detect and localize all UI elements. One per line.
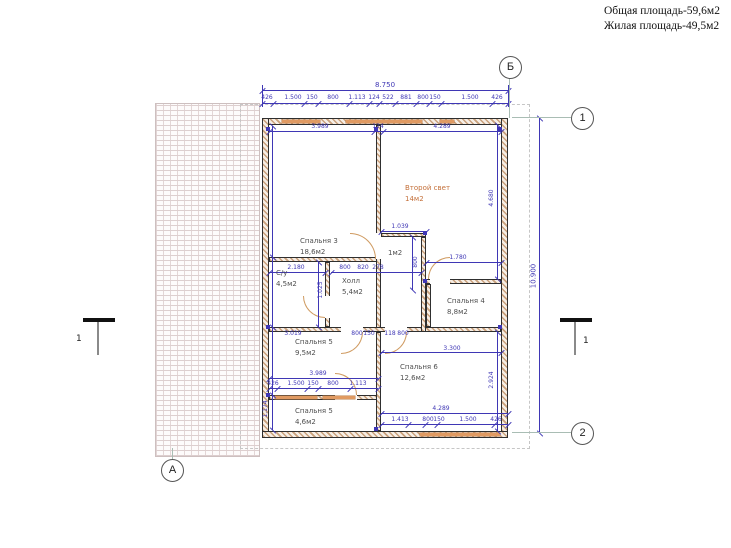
total-area-text: Общая площадь-59,6м2 <box>604 4 720 19</box>
dim-label: 1.039 <box>391 224 408 230</box>
dim-label: 881 <box>400 95 411 101</box>
dim-label: 1.113 <box>349 381 366 387</box>
grid-node <box>266 127 270 131</box>
dim-label: 150 <box>306 95 317 101</box>
dim-label: 3.989 <box>309 371 326 377</box>
room-area: 5,4м2 <box>342 287 363 298</box>
floor-plan-sheet: Общая площадь-59,6м2 Жилая площадь-49,5м… <box>0 0 731 548</box>
dim-line-right-upper <box>497 125 498 279</box>
room-name: Второй свет <box>405 183 450 194</box>
dim-label: 278 <box>372 265 383 271</box>
dim-label: 426 <box>490 417 501 423</box>
dim-label: 800 <box>413 256 419 267</box>
axis-marker-B: Б <box>499 56 522 79</box>
dim-label: 800 <box>339 265 350 271</box>
dim-label: 150 <box>433 417 444 423</box>
axis-leader <box>172 448 173 459</box>
dim-line-overall-height <box>539 118 540 433</box>
dim-label: 1.174 <box>263 400 269 417</box>
grid-node <box>374 427 378 431</box>
dim-label: 820 <box>357 265 368 271</box>
room-area: 1м2 <box>388 248 402 259</box>
title-block: Общая площадь-59,6м2 Жилая площадь-49,5м… <box>604 4 720 34</box>
room-area: 4,5м2 <box>276 279 297 290</box>
room-area: 18,6м2 <box>300 247 338 258</box>
dim-label: 3.300 <box>443 346 460 352</box>
dim-label: 118 <box>384 331 395 337</box>
dim-label: 2.924 <box>489 371 495 388</box>
room-label-bedroom6: Спальня 6 12,6м2 <box>400 362 438 383</box>
dim-label: 1.413 <box>391 417 408 423</box>
dim-line-overall-width <box>262 90 508 91</box>
section-label-right: 1 <box>583 336 589 346</box>
window <box>275 396 317 399</box>
window <box>346 120 422 123</box>
section-mark-right <box>560 318 592 322</box>
dim-line-top-inner <box>269 131 501 132</box>
dim-label: 800 <box>422 417 433 423</box>
grid-node <box>423 231 427 235</box>
room-label-closet: 1м2 <box>388 248 402 259</box>
dim-line-veranda-width <box>269 378 378 379</box>
dim-line-top-segments <box>262 103 508 104</box>
room-name: Спальня 4 <box>447 296 485 307</box>
room-label-bedroom4: Спальня 4 8,8м2 <box>447 296 485 317</box>
room-label-hall: Холл 5,4м2 <box>342 276 363 297</box>
room-name: Спальня 5 <box>295 337 333 348</box>
dim-label: 522 <box>382 95 393 101</box>
dim-label: 800 <box>351 331 362 337</box>
dim-line-closet <box>381 231 426 232</box>
grid-node <box>266 325 270 329</box>
axis-marker-A: А <box>161 459 184 482</box>
axis-leader <box>512 432 571 433</box>
dim-label: 1.500 <box>287 381 304 387</box>
dim-label: 1.780 <box>449 255 466 261</box>
axis-marker-1: 1 <box>571 107 594 130</box>
grid-node <box>423 279 427 283</box>
wall-bedroom4-west <box>426 284 431 327</box>
grid-node <box>498 325 502 329</box>
dim-label: 3.989 <box>311 124 328 130</box>
room-label-second-light: Второй свет 14м2 <box>405 183 450 204</box>
section-stem-right <box>574 322 576 355</box>
room-name: Холл <box>342 276 363 287</box>
room-area: 4,6м2 <box>295 417 333 428</box>
dim-label: 8.750 <box>375 82 395 89</box>
wall-exterior-right <box>501 118 508 438</box>
room-label-bedroom3: Спальня 3 18,6м2 <box>300 236 338 257</box>
section-label-left: 1 <box>76 334 82 344</box>
axis-marker-2: 2 <box>571 422 594 445</box>
room-name: Спальня 6 <box>400 362 438 373</box>
dim-label: 10.900 <box>531 264 538 289</box>
section-stem-left <box>97 322 99 355</box>
dim-label: 800 <box>327 381 338 387</box>
dim-label: 426 <box>267 381 278 387</box>
grid-node <box>374 127 378 131</box>
living-area-text: Жилая площадь-49,5м2 <box>604 19 720 34</box>
dim-label: 1.113 <box>348 95 365 101</box>
door-opening <box>376 233 381 259</box>
dim-label: 4.289 <box>433 124 450 130</box>
dim-label: 150 <box>429 95 440 101</box>
dim-label: 4.289 <box>432 406 449 412</box>
dim-label: 4.680 <box>489 189 495 206</box>
dim-label: 1.500 <box>459 417 476 423</box>
dim-line-bedroom6-top <box>381 352 501 353</box>
dim-label: 150 <box>363 331 374 337</box>
dim-line-veranda-segments <box>269 388 378 389</box>
window <box>420 433 500 436</box>
room-name: С/у <box>276 268 297 279</box>
axis-leader <box>509 78 510 118</box>
room-label-bathroom: С/у 4,5м2 <box>276 268 297 289</box>
dim-label: 800 <box>327 95 338 101</box>
door-opening <box>430 279 450 284</box>
dim-line-upper-right <box>426 262 501 263</box>
grid-node <box>498 127 502 131</box>
room-label-bedroom5b: Спальня 5 4,6м2 <box>295 406 333 427</box>
room-area: 9,5м2 <box>295 348 333 359</box>
section-mark-left <box>83 318 115 322</box>
dim-label: 1.025 <box>318 281 324 298</box>
dim-label: 124 <box>368 95 379 101</box>
dim-line-bottom-segments <box>381 424 508 425</box>
room-area: 12,6м2 <box>400 373 438 384</box>
grid-node <box>266 393 270 397</box>
dim-label: 150 <box>307 381 318 387</box>
dim-line-bedroom6-width <box>381 413 508 414</box>
dim-label: 1.500 <box>284 95 301 101</box>
window <box>323 396 355 399</box>
dim-label: 800 <box>417 95 428 101</box>
dim-line-hall <box>331 272 421 273</box>
room-label-bedroom5: Спальня 5 9,5м2 <box>295 337 333 358</box>
axis-leader <box>512 117 571 118</box>
room-area: 8,8м2 <box>447 307 485 318</box>
door-opening <box>325 296 330 318</box>
dim-label: 1.500 <box>461 95 478 101</box>
room-area: 14м2 <box>405 194 450 205</box>
dim-label: 800 <box>397 331 408 337</box>
wall-closet-north <box>381 233 426 237</box>
dim-label: 426 <box>261 95 272 101</box>
room-name: Спальня 5 <box>295 406 333 417</box>
dim-label: 426 <box>491 95 502 101</box>
room-name: Спальня 3 <box>300 236 338 247</box>
